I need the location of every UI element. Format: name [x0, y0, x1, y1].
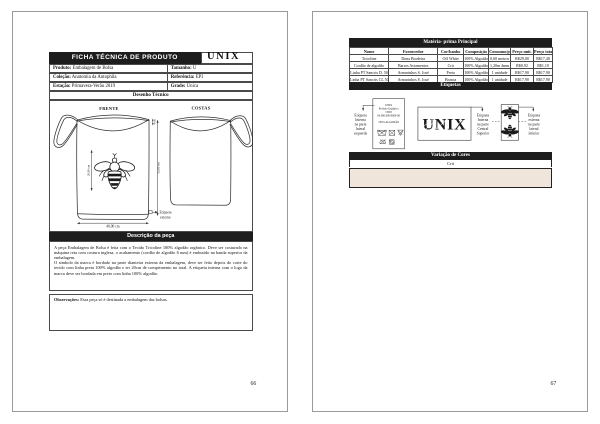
svg-text:Superior: Superior	[477, 131, 490, 135]
svg-text:00.000.000/0000-00: 00.000.000/0000-00	[377, 115, 400, 118]
svg-text:20,00 cm: 20,00 cm	[87, 164, 92, 176]
svg-text:Etiqueta: Etiqueta	[477, 113, 490, 117]
svg-text:Interna: Interna	[478, 118, 489, 122]
svg-text:Etiqueta: Etiqueta	[159, 210, 171, 214]
svg-text:Central: Central	[478, 127, 489, 131]
svg-text:lateral: lateral	[529, 127, 538, 131]
svg-text:externa: externa	[529, 118, 540, 122]
svg-text:inferior: inferior	[528, 131, 540, 135]
svg-text:na parte: na parte	[528, 122, 540, 126]
svg-text:4 cm: 4 cm	[154, 119, 157, 124]
svg-text:CNPJ: CNPJ	[385, 111, 392, 114]
svg-text:na parte: na parte	[355, 122, 367, 126]
svg-text:lateral: lateral	[356, 127, 365, 131]
svg-text:externa: externa	[160, 215, 171, 219]
svg-text:40,00 cm: 40,00 cm	[106, 224, 120, 229]
svg-text:55,00 cm: 55,00 cm	[157, 161, 162, 173]
svg-text:UNIX: UNIX	[385, 104, 392, 107]
svg-text:Produto Orgânico: Produto Orgânico	[379, 108, 399, 111]
svg-text:100% ALGODÃO: 100% ALGODÃO	[378, 121, 399, 124]
svg-text:FRENTE: FRENTE	[99, 106, 119, 111]
svg-text:UNIX: UNIX	[422, 117, 466, 134]
svg-text:Etiqueta: Etiqueta	[528, 113, 541, 117]
svg-text:na parte: na parte	[477, 122, 489, 126]
svg-text:COSTAS: COSTAS	[192, 105, 211, 110]
svg-text:Interna: Interna	[355, 118, 366, 122]
svg-text:Etiqueta: Etiqueta	[354, 113, 367, 117]
svg-text:esquerda: esquerda	[354, 131, 367, 135]
